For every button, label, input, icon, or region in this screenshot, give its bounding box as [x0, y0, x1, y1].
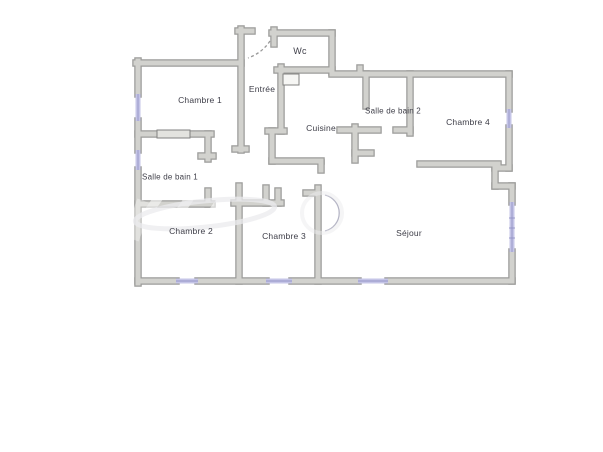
room-label-chambre-4: Chambre 4 [446, 117, 490, 127]
room-label-salle-de-bain-1: Salle de bain 1 [142, 173, 198, 182]
radiator-chambre1 [157, 130, 190, 138]
entry-door-arc [248, 41, 270, 58]
duct-cuisine [283, 74, 299, 85]
floorplan-drawing [0, 0, 603, 452]
room-label-cuisine: Cuisine [306, 123, 336, 133]
room-label-chambre-1: Chambre 1 [178, 95, 222, 105]
room-label-chambre-3: Chambre 3 [262, 231, 306, 241]
floorplan-canvas: Wc Entrée Chambre 1 Cuisine Salle de bai… [0, 0, 603, 452]
room-label-entree: Entrée [249, 84, 275, 94]
room-label-wc: Wc [293, 46, 306, 56]
room-label-sejour: Séjour [396, 228, 422, 238]
walls-outline [136, 29, 512, 283]
room-label-chambre-2: Chambre 2 [169, 226, 213, 236]
watermark [124, 190, 342, 242]
room-label-salle-de-bain-2: Salle de bain 2 [365, 107, 421, 116]
